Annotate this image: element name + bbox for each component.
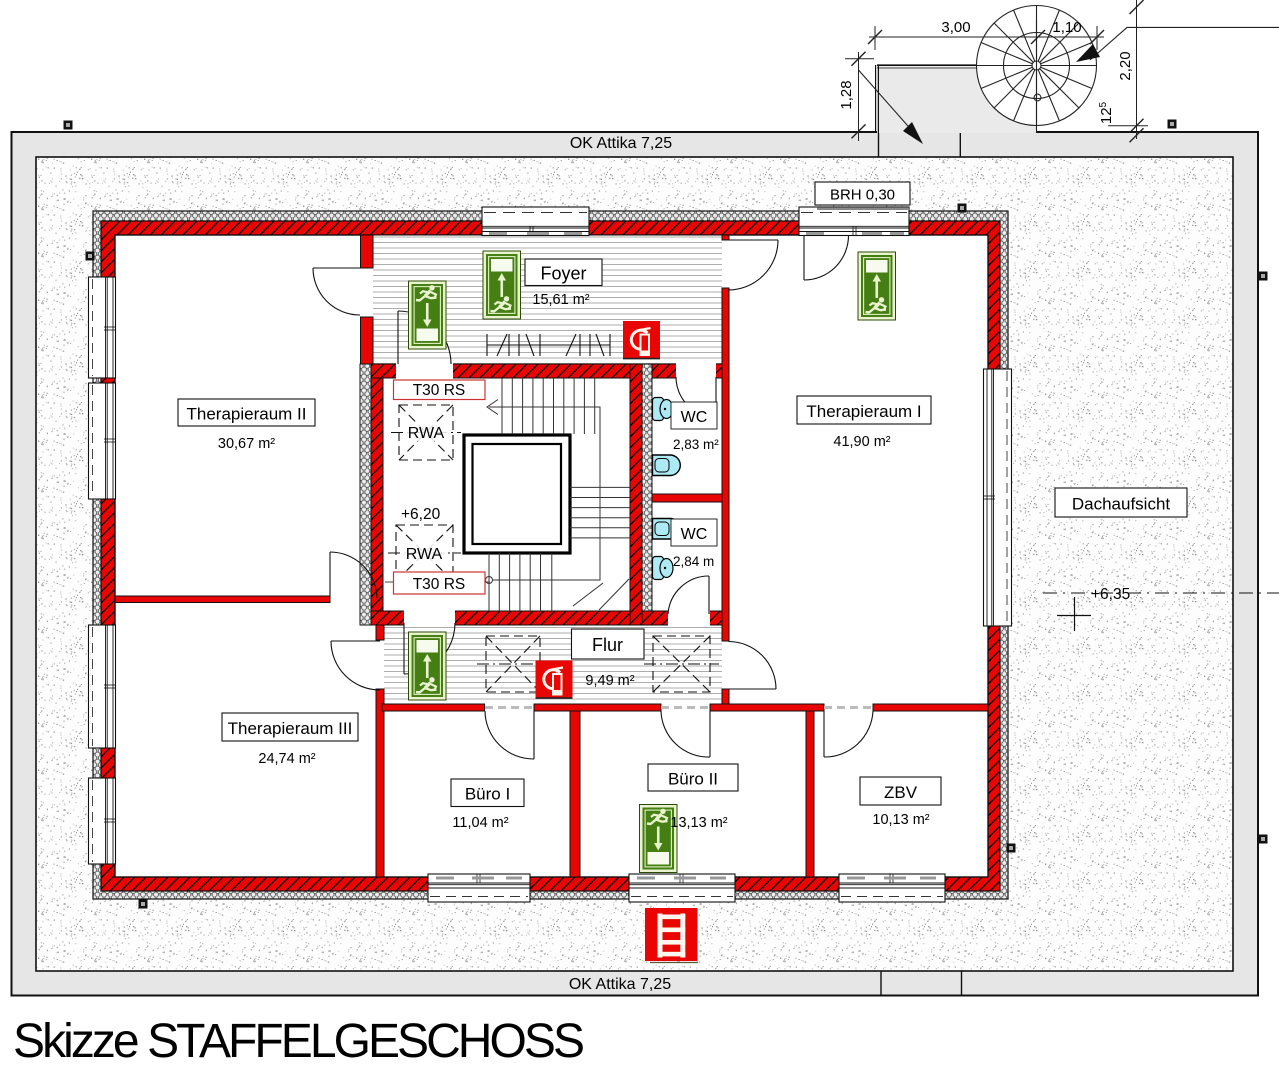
svg-text:Büro I: Büro I	[465, 785, 510, 804]
svg-text:Therapieraum II: Therapieraum II	[187, 405, 307, 424]
svg-text:13,13 m²: 13,13 m²	[670, 815, 727, 831]
svg-text:+6,20: +6,20	[401, 506, 441, 523]
svg-text:OK Attika 7,25: OK Attika 7,25	[570, 135, 672, 152]
svg-text:+6,35: +6,35	[1091, 586, 1130, 603]
svg-text:Skizze STAFFELGESCHOSS: Skizze STAFFELGESCHOSS	[13, 1015, 585, 1068]
svg-text:RWA: RWA	[406, 546, 443, 563]
svg-text:T30 RS: T30 RS	[413, 576, 466, 593]
svg-text:41,90 m²: 41,90 m²	[833, 434, 890, 450]
svg-text:9,49 m²: 9,49 m²	[585, 673, 634, 689]
svg-text:10,13 m²: 10,13 m²	[872, 812, 929, 828]
svg-text:Dachaufsicht: Dachaufsicht	[1072, 495, 1171, 514]
svg-text:11,04 m²: 11,04 m²	[452, 815, 508, 831]
svg-text:15,61 m²: 15,61 m²	[532, 292, 589, 308]
svg-text:2,83 m²: 2,83 m²	[673, 437, 719, 452]
svg-text:WC: WC	[681, 526, 708, 543]
svg-text:Flur: Flur	[592, 635, 623, 655]
svg-text:30,67 m²: 30,67 m²	[218, 436, 275, 452]
svg-text:1,10: 1,10	[1052, 19, 1081, 36]
svg-text:24,74 m²: 24,74 m²	[258, 751, 315, 767]
svg-text:BRH 0,30: BRH 0,30	[830, 187, 895, 204]
svg-text:WC: WC	[681, 409, 708, 426]
svg-text:Therapieraum III: Therapieraum III	[228, 719, 353, 738]
svg-text:ZBV: ZBV	[884, 783, 918, 802]
svg-text:1,28: 1,28	[838, 80, 855, 109]
svg-text:Foyer: Foyer	[540, 264, 586, 284]
svg-text:2,84 m: 2,84 m	[673, 554, 714, 569]
svg-text:Büro II: Büro II	[668, 770, 718, 789]
svg-text:2,20: 2,20	[1117, 51, 1134, 80]
svg-text:Therapieraum I: Therapieraum I	[806, 402, 921, 421]
svg-text:OK Attika 7,25: OK Attika 7,25	[569, 976, 671, 993]
svg-text:T30 RS: T30 RS	[413, 382, 466, 399]
svg-text:RWA: RWA	[408, 425, 445, 442]
svg-text:3,00: 3,00	[941, 19, 970, 36]
